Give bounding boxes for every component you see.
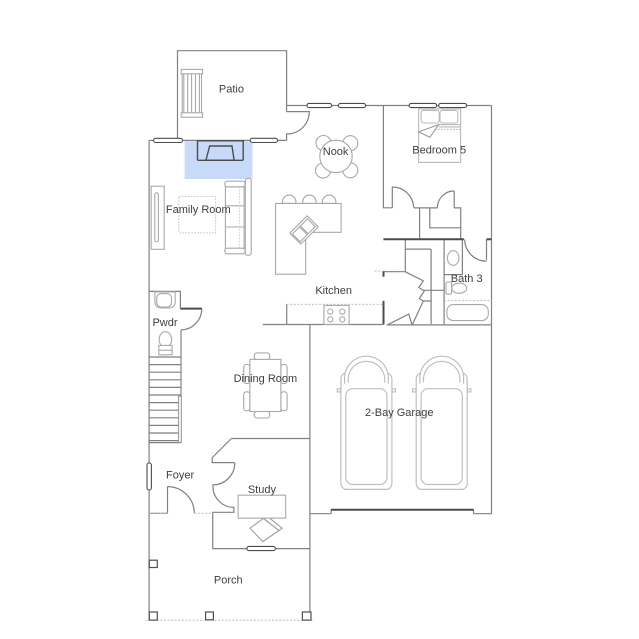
svg-text:Study: Study xyxy=(248,484,277,496)
svg-text:Patio: Patio xyxy=(219,84,244,96)
svg-text:Foyer: Foyer xyxy=(166,470,194,482)
svg-text:Nook: Nook xyxy=(323,146,349,158)
svg-text:Kitchen: Kitchen xyxy=(315,285,352,297)
svg-text:Bedroom 5: Bedroom 5 xyxy=(412,145,466,157)
svg-text:Family Room: Family Room xyxy=(166,204,231,216)
svg-text:2-Bay Garage: 2-Bay Garage xyxy=(365,407,433,419)
svg-text:Pwdr: Pwdr xyxy=(152,317,177,329)
svg-text:Dining Room: Dining Room xyxy=(234,373,298,385)
svg-text:Porch: Porch xyxy=(214,574,243,586)
svg-text:Bath 3: Bath 3 xyxy=(451,273,483,285)
